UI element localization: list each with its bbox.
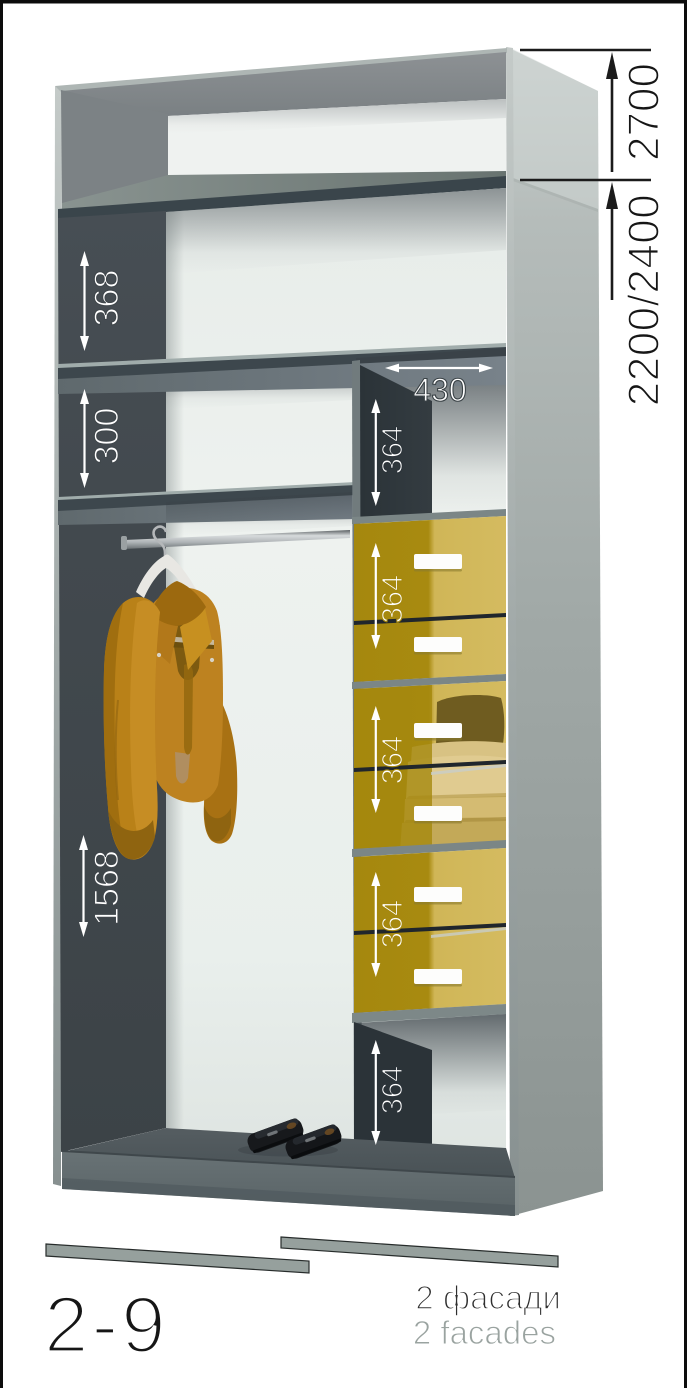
svg-text:1568: 1568: [88, 850, 126, 926]
svg-text:2-9: 2-9: [44, 1280, 169, 1369]
svg-text:2700: 2700: [620, 63, 669, 161]
svg-text:364: 364: [377, 575, 409, 623]
svg-text:368: 368: [88, 270, 126, 327]
svg-text:2200/2400: 2200/2400: [620, 194, 669, 407]
svg-text:364: 364: [377, 426, 409, 474]
svg-text:300: 300: [88, 408, 126, 465]
svg-text:364: 364: [377, 736, 409, 784]
svg-text:2 фасади: 2 фасади: [415, 1279, 561, 1316]
svg-text:2 facades: 2 facades: [413, 1314, 556, 1351]
svg-text:364: 364: [377, 900, 409, 948]
svg-text:364: 364: [377, 1066, 409, 1114]
svg-text:430: 430: [413, 372, 466, 408]
